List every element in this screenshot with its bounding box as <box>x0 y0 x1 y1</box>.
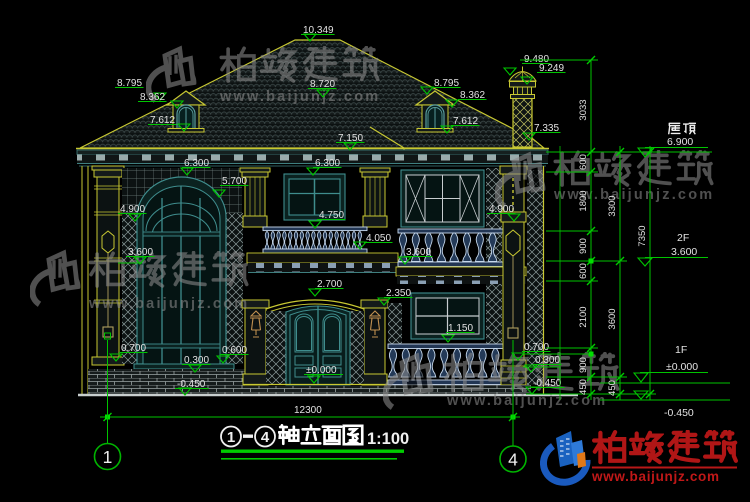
svg-text:±0.000: ±0.000 <box>666 361 698 373</box>
svg-text:3300: 3300 <box>607 195 618 216</box>
svg-text:7350: 7350 <box>637 225 648 246</box>
svg-text:1800: 1800 <box>578 190 589 211</box>
svg-text:3.600: 3.600 <box>671 246 697 258</box>
svg-text:900: 900 <box>578 357 589 373</box>
svg-text:1:100: 1:100 <box>367 430 409 448</box>
svg-text:4: 4 <box>508 450 518 470</box>
svg-text:2F: 2F <box>677 232 689 244</box>
svg-text:1: 1 <box>103 447 113 467</box>
svg-text:3600: 3600 <box>607 308 618 329</box>
svg-text:www.baijunjz.com: www.baijunjz.com <box>591 469 720 484</box>
svg-text:450: 450 <box>607 380 618 396</box>
svg-text:4: 4 <box>261 429 270 446</box>
svg-text:www.baijunjz.com: www.baijunjz.com <box>219 89 380 105</box>
svg-text:2100: 2100 <box>578 306 589 327</box>
svg-text:1F: 1F <box>675 344 687 356</box>
svg-text:-0.450: -0.450 <box>664 407 694 419</box>
svg-text:6.900: 6.900 <box>667 136 693 148</box>
svg-text:600: 600 <box>578 154 589 170</box>
svg-text:600: 600 <box>578 263 589 279</box>
svg-text:900: 900 <box>578 238 589 254</box>
svg-text:12300: 12300 <box>294 405 322 416</box>
svg-text:1: 1 <box>227 429 235 446</box>
svg-text:www.baijunjz.com: www.baijunjz.com <box>88 296 249 312</box>
svg-text:3033: 3033 <box>578 99 589 120</box>
svg-text:450: 450 <box>578 379 589 395</box>
